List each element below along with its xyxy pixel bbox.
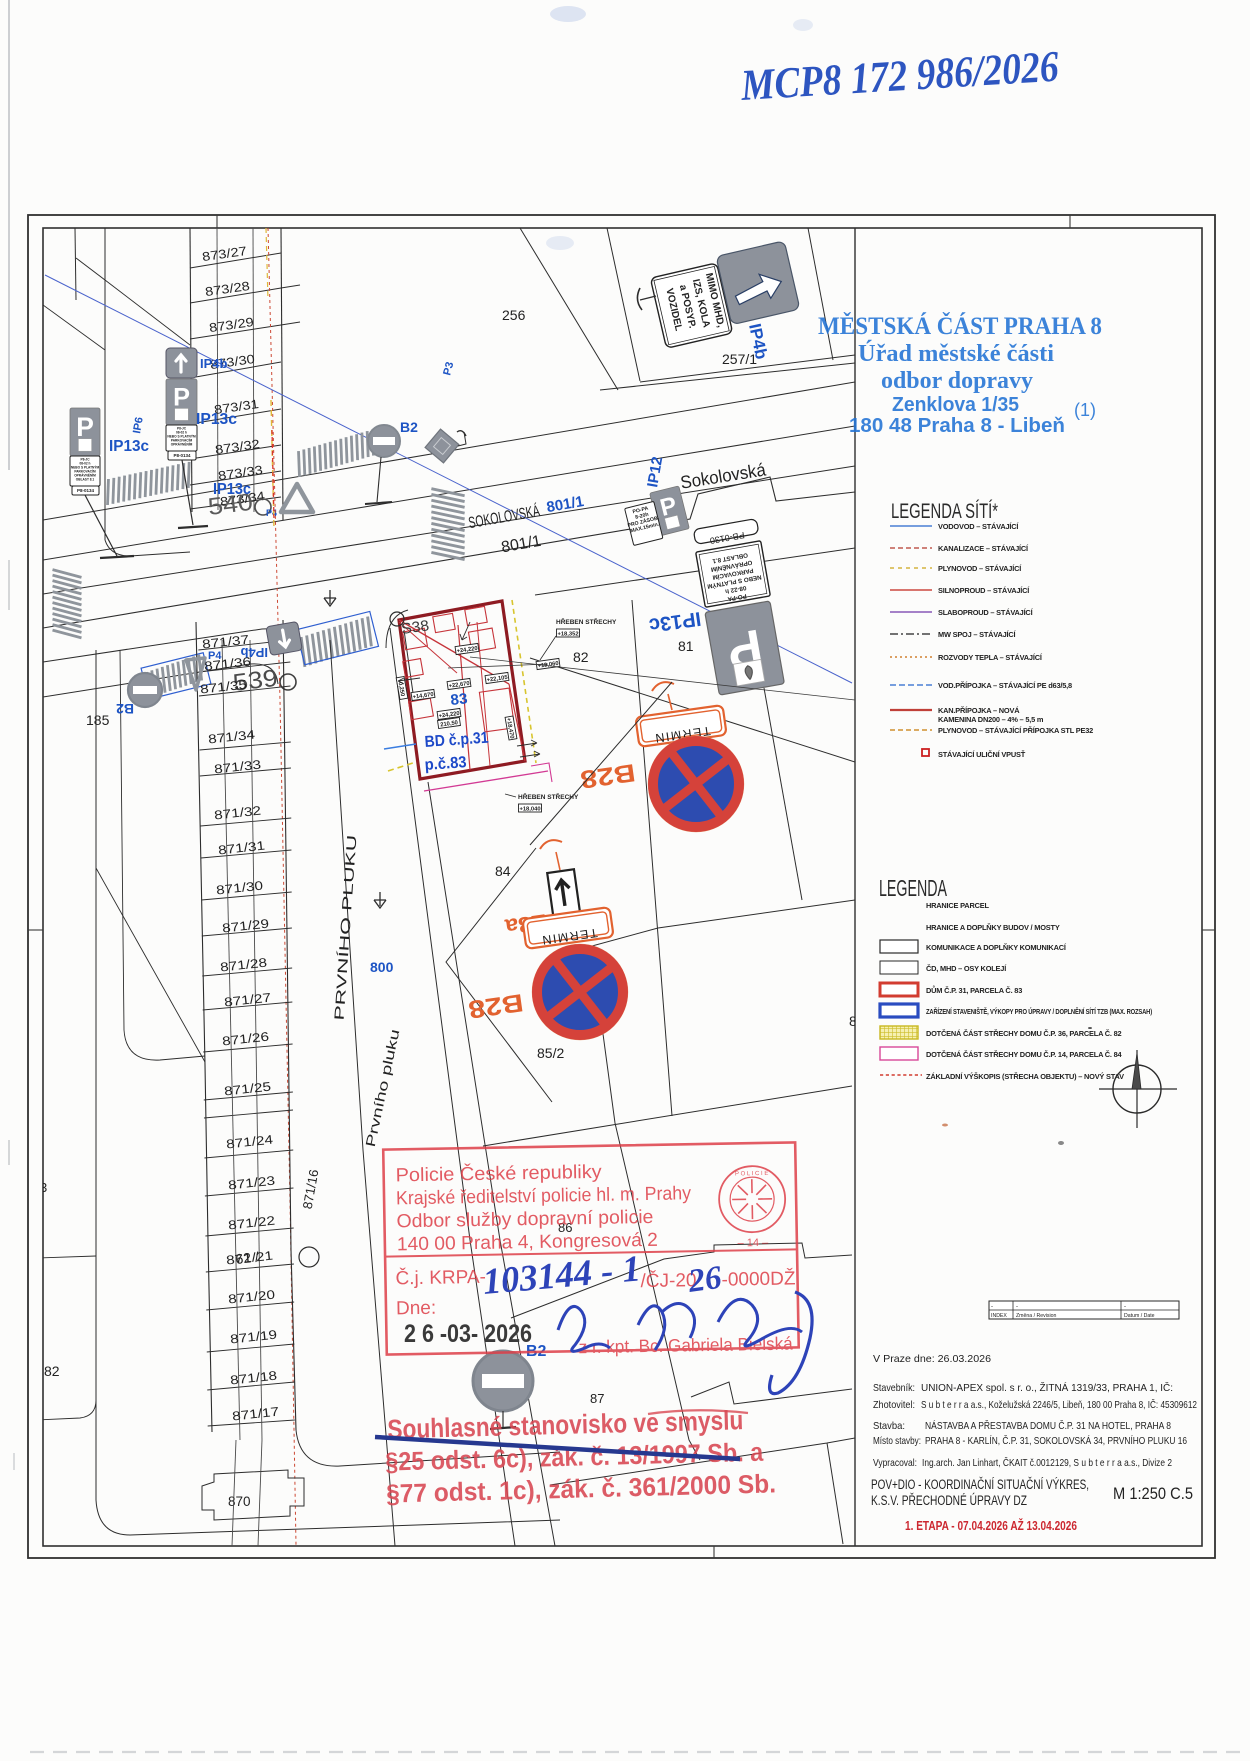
svg-text:P O L I C I E: P O L I C I E xyxy=(735,1171,768,1178)
svg-text:PRAHA 8 - KARLÍN, Č.P. 31, SOK: PRAHA 8 - KARLÍN, Č.P. 31, SOKOLOVSKÁ 34… xyxy=(925,1434,1187,1447)
svg-text:Datum / Date: Datum / Date xyxy=(1124,1313,1155,1319)
svg-text:84: 84 xyxy=(495,863,511,879)
svg-text:SLABOPROUD – STÁVAJÍCÍ: SLABOPROUD – STÁVAJÍCÍ xyxy=(938,608,1034,617)
svg-text:81: 81 xyxy=(678,638,694,654)
svg-text:-: - xyxy=(1124,1304,1126,1310)
svg-text:DOTČENÁ ČÁST STŘECHY DOMU Č.P.: DOTČENÁ ČÁST STŘECHY DOMU Č.P. 36, PARCE… xyxy=(926,1029,1122,1038)
svg-text:K.S.V. PŘECHODNÉ ÚPRAVY DZ: K.S.V. PŘECHODNÉ ÚPRAVY DZ xyxy=(871,1493,1027,1508)
svg-text:Dne:: Dne: xyxy=(396,1298,437,1320)
svg-text:2 6 -03- 2026: 2 6 -03- 2026 xyxy=(404,1320,532,1348)
svg-text:MW SPOJ – STÁVAJÍCÍ: MW SPOJ – STÁVAJÍCÍ xyxy=(938,630,1017,639)
svg-text:LEGENDA SÍTÍ*: LEGENDA SÍTÍ* xyxy=(891,500,998,523)
svg-text:IP13c: IP13c xyxy=(109,438,149,455)
svg-text:Č.j. KRPA-: Č.j. KRPA- xyxy=(395,1266,486,1290)
svg-text:Odbor služby dopravní policie: Odbor služby dopravní policie xyxy=(396,1207,653,1232)
svg-text:Stavba:: Stavba: xyxy=(873,1420,905,1432)
svg-text:p.č.83: p.č.83 xyxy=(424,754,467,774)
svg-text:Vypracoval:: Vypracoval: xyxy=(873,1457,917,1469)
svg-text:P4: P4 xyxy=(208,650,222,662)
svg-text:odbor dopravy: odbor dopravy xyxy=(881,368,1033,394)
svg-text:IP4b: IP4b xyxy=(240,645,268,660)
svg-text:IP13c: IP13c xyxy=(213,481,251,498)
svg-text:KAMENINA DN200 – 4% – 5,5 m: KAMENINA DN200 – 4% – 5,5 m xyxy=(938,715,1044,724)
svg-text:-0000DŽ: -0000DŽ xyxy=(721,1267,796,1290)
svg-text:ROZVODY TEPLA – STÁVAJÍCÍ: ROZVODY TEPLA – STÁVAJÍCÍ xyxy=(938,653,1043,662)
svg-text:DŮM Č.P. 31, PARCELA Č. 83: DŮM Č.P. 31, PARCELA Č. 83 xyxy=(926,985,1022,995)
svg-text:ČD, MHD – OSY KOLEJÍ: ČD, MHD – OSY KOLEJÍ xyxy=(926,964,1007,973)
svg-text:+18,040: +18,040 xyxy=(519,806,540,812)
svg-text:P8-0134: P8-0134 xyxy=(173,453,191,458)
svg-text:87: 87 xyxy=(590,1391,604,1406)
svg-text:PLYNOVOD – STÁVAJÍCÍ: PLYNOVOD – STÁVAJÍCÍ xyxy=(938,564,1022,573)
svg-text:POV+DIO - KOORDINAČNÍ SITUAČNÍ: POV+DIO - KOORDINAČNÍ SITUAČNÍ VÝKRES, xyxy=(871,1477,1089,1492)
svg-text:870: 870 xyxy=(228,1494,251,1509)
svg-text:Zhotovitel:: Zhotovitel: xyxy=(873,1399,915,1411)
svg-text:P: P xyxy=(173,384,190,412)
svg-text:85/2: 85/2 xyxy=(537,1045,564,1061)
svg-text:HRANICE PARCEL: HRANICE PARCEL xyxy=(926,901,989,910)
svg-text:Ing.arch. Jan Linhart, ČKAIT č: Ing.arch. Jan Linhart, ČKAIT č.0012129, … xyxy=(922,1456,1172,1469)
svg-text:+18,352: +18,352 xyxy=(557,631,578,637)
svg-text:VODOVOD – STÁVAJÍCÍ: VODOVOD – STÁVAJÍCÍ xyxy=(938,522,1019,531)
svg-text:Stavebník:: Stavebník: xyxy=(873,1382,915,1394)
svg-text:800: 800 xyxy=(370,959,394,975)
svg-text:1. ETAPA - 07.04.2026 AŽ 13.04: 1. ETAPA - 07.04.2026 AŽ 13.04.2026 xyxy=(905,1518,1077,1533)
svg-text:PLYNOVOD – STÁVAJÍCÍ PŘÍPOJKA: PLYNOVOD – STÁVAJÍCÍ PŘÍPOJKA STL PE32 xyxy=(938,726,1093,735)
svg-text:B2: B2 xyxy=(400,419,418,435)
svg-text:62 /: 62 / xyxy=(235,1249,260,1267)
svg-text:HRANICE A DOPLŇKY BUDOV / MOST: HRANICE A DOPLŇKY BUDOV / MOSTY xyxy=(926,923,1060,932)
svg-text:S u b t e r r a a.s., Koželužs: S u b t e r r a a.s., Koželužská 2246/5,… xyxy=(921,1398,1197,1411)
svg-text:Změna / Revision: Změna / Revision xyxy=(1016,1313,1056,1319)
svg-text:INDEX: INDEX xyxy=(991,1313,1007,1319)
svg-text:Místo stavby:: Místo stavby: xyxy=(873,1435,921,1447)
svg-text:ZÁKLADNÍ VÝŠKOPIS (STŘECHA OBJ: ZÁKLADNÍ VÝŠKOPIS (STŘECHA OBJEKTU) – NO… xyxy=(926,1072,1124,1081)
svg-text:(1): (1) xyxy=(1074,400,1096,420)
svg-text:M 1:250 C.5: M 1:250 C.5 xyxy=(1113,1484,1193,1503)
svg-text:83: 83 xyxy=(450,690,469,709)
svg-text:P8-0134: P8-0134 xyxy=(77,488,95,493)
svg-text:26: 26 xyxy=(685,1260,724,1300)
svg-text:185: 185 xyxy=(86,712,110,728)
svg-text:256: 256 xyxy=(502,307,526,323)
svg-text:KOMUNIKACE A DOPLŇKY KOMUNIKAC: KOMUNIKACE A DOPLŇKY KOMUNIKACÍ xyxy=(926,943,1067,952)
svg-text:-: - xyxy=(1016,1304,1018,1310)
svg-text:180 48 Praha 8 - Libeň: 180 48 Praha 8 - Libeň xyxy=(849,415,1065,437)
svg-text:STÁVAJÍCÍ ULIČNÍ VPUSŤ: STÁVAJÍCÍ ULIČNÍ VPUSŤ xyxy=(938,750,1026,759)
svg-text:Úřad městské části: Úřad městské části xyxy=(858,341,1054,367)
svg-text:82: 82 xyxy=(44,1363,60,1379)
svg-text:OPRÁVNĚNÍM: OPRÁVNĚNÍM xyxy=(171,442,193,447)
svg-text:ZAŘÍZENÍ STAVENIŠTĚ, VÝKOPY PR: ZAŘÍZENÍ STAVENIŠTĚ, VÝKOPY PRO ÚPRAVY /… xyxy=(926,1007,1153,1016)
svg-text:Policie České republiky: Policie České republiky xyxy=(395,1161,602,1187)
svg-text:Zenklova 1/35: Zenklova 1/35 xyxy=(892,394,1019,416)
svg-text:P: P xyxy=(76,412,94,442)
svg-text:NÁSTAVBA A PŘESTAVBA DOMU Č.P.: NÁSTAVBA A PŘESTAVBA DOMU Č.P. 31 NA HOT… xyxy=(925,1419,1171,1432)
svg-text:UNION-APEX spol. s r. o., ŽITN: UNION-APEX spol. s r. o., ŽITNÁ 1319/33,… xyxy=(921,1381,1173,1394)
svg-text:– 14 –: – 14 – xyxy=(738,1237,770,1250)
svg-text:OBLAST 8.1: OBLAST 8.1 xyxy=(76,478,95,482)
svg-text:LEGENDA: LEGENDA xyxy=(879,875,947,901)
svg-text:B2: B2 xyxy=(116,701,134,717)
svg-text:KANALIZACE – STÁVAJÍCÍ: KANALIZACE – STÁVAJÍCÍ xyxy=(938,544,1029,553)
svg-text:z r. kpt. Bc. Gabriela Bielská: z r. kpt. Bc. Gabriela Bielská xyxy=(579,1333,794,1357)
svg-text:KAN.PŘÍPOJKA – NOVÁ: KAN.PŘÍPOJKA – NOVÁ xyxy=(938,706,1020,715)
svg-text:MĚSTSKÁ ČÁST PRAHA 8: MĚSTSKÁ ČÁST PRAHA 8 xyxy=(818,311,1102,340)
svg-text:HŘEBEN STŘECHY: HŘEBEN STŘECHY xyxy=(556,617,617,626)
svg-text:82: 82 xyxy=(573,649,589,665)
svg-text:-: - xyxy=(991,1304,993,1310)
svg-text:IP4b: IP4b xyxy=(200,356,228,371)
svg-text:IP13c: IP13c xyxy=(196,411,237,428)
svg-text:V Praze dne: 26.03.2026: V Praze dne: 26.03.2026 xyxy=(873,1353,991,1365)
svg-text:SILNOPROUD – STÁVAJÍCÍ: SILNOPROUD – STÁVAJÍCÍ xyxy=(938,586,1030,595)
svg-text:DOTČENÁ ČÁST STŘECHY DOMU Č.P.: DOTČENÁ ČÁST STŘECHY DOMU Č.P. 14, PARCE… xyxy=(926,1050,1123,1059)
svg-text:VOD.PŘÍPOJKA – STÁVAJÍCÍ PE d6: VOD.PŘÍPOJKA – STÁVAJÍCÍ PE d63/5,8 xyxy=(938,681,1072,690)
